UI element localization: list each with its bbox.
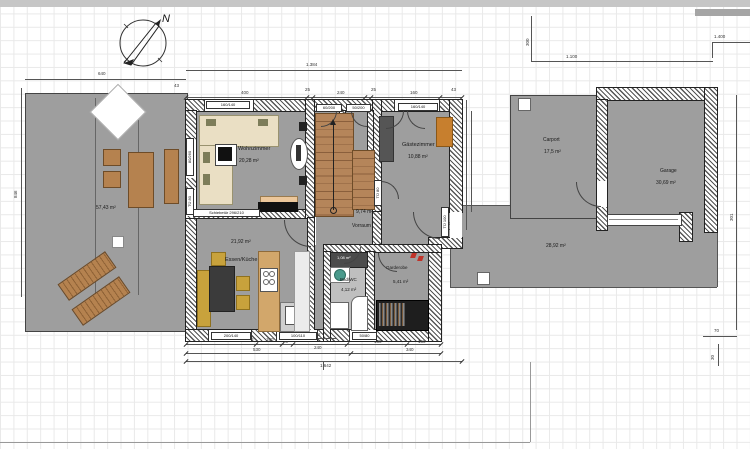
dim-top-total: 1.384	[306, 63, 317, 68]
garage-door[interactable]	[607, 214, 682, 226]
compass-needle	[124, 23, 159, 65]
dim-carport-offset: 300	[526, 38, 531, 46]
door-label-tu100: TÜ 100	[441, 207, 449, 237]
dim-line-step-h	[718, 344, 719, 366]
dim-top-3: 240	[337, 91, 345, 96]
door-label-60200: 60/200	[316, 104, 342, 112]
bad-shower[interactable]	[351, 296, 368, 331]
garage-wall-left	[597, 100, 607, 230]
bad-washer[interactable]	[330, 302, 349, 329]
bad-name-label: Bad/WC	[340, 278, 357, 283]
garage-door-line	[609, 219, 678, 220]
stairs-walkline-start	[330, 207, 337, 214]
baseline-bottom	[0, 442, 530, 443]
window-label-160140-a: 160/140	[206, 101, 250, 109]
carport-name-label: Carport	[543, 138, 560, 143]
stairs-flight-2[interactable]	[352, 150, 375, 210]
dim-line-corner	[712, 42, 750, 43]
dim-line-left-width	[25, 79, 186, 80]
dim-top-small: 43	[174, 84, 179, 89]
schiebetuer-label: Schiebetür 296/210	[193, 209, 260, 217]
vorraum-name-label: Vorraum	[352, 224, 371, 229]
carport-area-label: 17,5 m²	[544, 150, 561, 155]
garage-wall-right	[705, 88, 717, 232]
entry-door-gap	[450, 212, 462, 238]
dim-top-5: 160	[410, 91, 418, 96]
door-label-80260: 80/260	[186, 138, 194, 176]
wall-speaker-1[interactable]	[299, 122, 307, 131]
door-label-tu80-a: TÜ 80	[186, 188, 194, 215]
dining-chair-3[interactable]	[236, 295, 250, 310]
driveway-area-label: 28,92 m²	[546, 244, 566, 249]
vorraum-corridor-floor[interactable]	[314, 245, 324, 330]
baseline-bottom-v	[530, 362, 531, 442]
terrace-light[interactable]	[112, 236, 124, 248]
dim-bottom-2: 100	[266, 338, 274, 343]
sofa-pillow-3	[203, 152, 210, 163]
sofa-pillow-2	[258, 119, 268, 126]
kitchen-tall-units[interactable]	[294, 251, 310, 332]
garage-floor[interactable]	[607, 100, 705, 215]
dim-hook-v	[323, 361, 324, 370]
dim-garage-side: 301	[730, 213, 735, 221]
door-label-50200: 50/200	[346, 104, 371, 112]
dining-table[interactable]	[209, 266, 235, 312]
window-label-200140: 200/140	[211, 332, 251, 340]
garderobe-name-label: Garderobe	[386, 266, 408, 271]
gaeste-area-label: 10,88 m²	[408, 155, 428, 160]
dim-bottom-340: 340	[406, 348, 414, 353]
top-band-dark	[695, 9, 750, 16]
dim-top-4: 25	[371, 88, 376, 93]
dim-bottom-total: 1.642	[320, 364, 331, 369]
vorraum-area-label: 9,74 m²	[356, 210, 373, 215]
window-label-100110: 100/110	[279, 332, 317, 340]
wall-speaker-2[interactable]	[299, 176, 307, 185]
garage-name-label: Garage	[660, 169, 677, 174]
dining-chair-2[interactable]	[236, 276, 250, 291]
garage-wall-top	[597, 88, 717, 100]
stairs-walkline	[333, 124, 334, 210]
dim-step-height: 30	[711, 355, 716, 360]
garderobe-area-label: 5,41 m²	[393, 280, 408, 285]
dim-line-top-chain	[186, 97, 462, 98]
house-wall-right-lower	[429, 248, 441, 341]
terrace-stool-2[interactable]	[103, 171, 121, 188]
stairs-walkline-arrow	[330, 119, 336, 125]
terrace-table[interactable]	[128, 152, 154, 208]
dim-line-house-right-2	[471, 111, 472, 212]
dim-line-bottom-total	[186, 361, 462, 362]
stairs-flight-1[interactable]	[315, 113, 354, 217]
top-band	[0, 0, 750, 7]
dim-top-6: 43	[451, 88, 456, 93]
tv-screen	[218, 147, 232, 161]
gaeste-name-label: Gästezimmer	[402, 143, 435, 149]
kueche-name-label: Essen/Küche	[225, 258, 257, 264]
dim-line-left-height	[21, 88, 22, 297]
dim-bottom-7: 160	[418, 340, 426, 345]
dim-line-garage-side	[736, 95, 737, 330]
sofa-pillow-1	[206, 119, 216, 126]
floorplan-canvas: N 57,43 m² 28,92 m² Carport 17,5 m² Gara…	[0, 0, 750, 449]
dim-top-2: 25	[305, 88, 310, 93]
driveway-edge-right	[717, 232, 718, 287]
gaeste-bed[interactable]	[436, 117, 453, 147]
dim-bottom-530: 530	[253, 348, 261, 353]
partition-gaeste-lower	[373, 212, 381, 245]
dim-left-height: 846	[14, 190, 19, 198]
dining-chair-1[interactable]	[211, 252, 226, 266]
dim-line-step-w	[703, 336, 737, 337]
driveway-post[interactable]	[477, 272, 490, 285]
garderobe-shelf-books	[379, 303, 405, 326]
terrace-bench[interactable]	[164, 149, 179, 204]
dim-left-width: 640	[98, 72, 106, 77]
wohnzimmer-area-label: 20,28 m²	[239, 159, 259, 164]
window-label-160140-b: 160/140	[398, 103, 438, 111]
dim-line-top-total	[186, 70, 462, 71]
garage-area-label: 30,69 m²	[656, 181, 676, 186]
partition-vorraum-bad	[324, 245, 441, 252]
dim-line-right-total	[531, 61, 713, 62]
dim-corner-total: 1.400	[714, 35, 725, 40]
dim-right-total: 1.100	[566, 55, 577, 60]
stove-burner-4	[269, 279, 275, 285]
door-label-tu80-b: TÜ 80	[374, 180, 382, 206]
dim-line-carport-offset	[531, 16, 532, 61]
bad-area-label: 4,12 m²	[341, 288, 356, 293]
dim-top-1: 400	[241, 91, 249, 96]
abstellraum-area-label: 1,08 m²	[337, 256, 351, 260]
kueche-area-label: 21,92 m²	[231, 240, 251, 245]
wohnzimmer-name-label: Wohnzimmer	[238, 147, 270, 153]
stove-column-core	[296, 145, 301, 161]
dim-line-corner-v	[712, 42, 713, 58]
sofa-pillow-4	[203, 174, 210, 185]
window-label-5080: 50/80	[352, 332, 377, 340]
dim-bottom-5: 240	[314, 346, 322, 351]
dim-line-bottom-row2	[186, 353, 441, 354]
carport-post[interactable]	[518, 98, 531, 111]
stove-burner-2	[269, 271, 275, 277]
driveway-edge-bottom	[450, 287, 717, 288]
terrace-stool-1[interactable]	[103, 149, 121, 166]
dim-step-width: 70	[714, 329, 719, 334]
dim-line-house-right-1	[466, 100, 467, 230]
terrace-area-label: 57,43 m²	[96, 206, 116, 211]
sideboard-body	[258, 202, 298, 212]
compass-n-label: N	[162, 13, 170, 25]
north-compass[interactable]: N	[112, 10, 176, 74]
